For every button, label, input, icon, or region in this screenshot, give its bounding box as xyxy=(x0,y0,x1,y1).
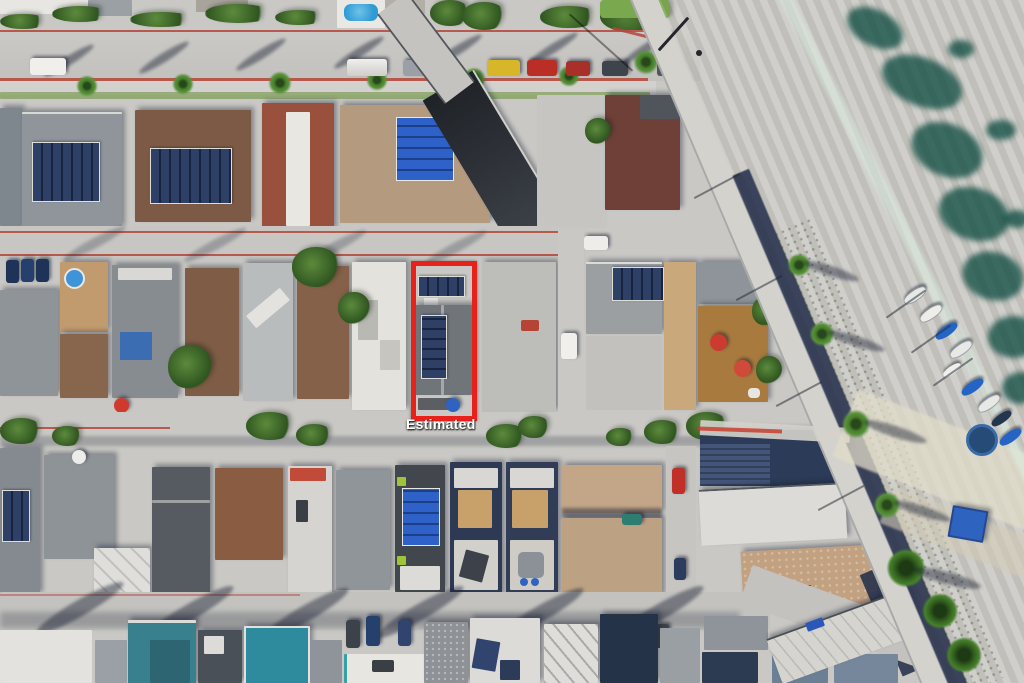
aerial-photo: Estimated xyxy=(0,0,1024,683)
building-roof xyxy=(702,652,758,683)
parked-car xyxy=(346,620,360,648)
turf-patch xyxy=(397,477,406,486)
red-patio-umbrella xyxy=(114,398,129,413)
street-lamp xyxy=(696,50,702,56)
parked-car xyxy=(527,60,557,76)
hedge xyxy=(205,4,271,23)
estimated-label: Estimated xyxy=(406,416,476,432)
turf-patch xyxy=(397,556,406,565)
palm-tree xyxy=(171,72,195,96)
parked-car xyxy=(347,59,387,76)
courtyard xyxy=(458,490,492,528)
parked-car xyxy=(366,616,380,646)
seaweed-patch xyxy=(948,40,974,58)
tree xyxy=(338,292,370,324)
hedge xyxy=(540,6,598,28)
parked-car xyxy=(674,558,686,580)
parked-car xyxy=(36,259,49,282)
tile-roof-section xyxy=(700,444,770,486)
rooftop-furniture xyxy=(521,320,539,331)
driveway xyxy=(537,95,607,228)
roof-section xyxy=(400,566,440,590)
building-roof xyxy=(544,624,598,683)
hedge xyxy=(130,12,192,27)
parked-car xyxy=(487,60,520,76)
roof-solar-array xyxy=(402,488,440,546)
white-patio-umbrella xyxy=(72,450,86,464)
building-roof xyxy=(44,455,114,559)
red-curb-line xyxy=(0,231,580,233)
building-roof xyxy=(336,470,390,590)
seaweed-patch xyxy=(1004,210,1024,228)
red-curb-line xyxy=(0,594,300,596)
hot-tub xyxy=(748,388,760,398)
building-roof xyxy=(0,108,22,226)
parked-car xyxy=(566,61,590,76)
roof-ridge-line xyxy=(152,500,210,503)
building-roof xyxy=(60,334,108,398)
roof-section xyxy=(500,660,520,680)
building-roof xyxy=(215,468,283,560)
building-roof xyxy=(0,630,92,683)
palm-tree xyxy=(944,636,984,674)
hedge xyxy=(52,6,108,22)
parked-car xyxy=(561,333,577,359)
building-roof xyxy=(95,640,127,683)
hedge xyxy=(275,10,323,25)
trampoline xyxy=(966,424,998,456)
parked-car xyxy=(584,236,608,250)
wood-deck xyxy=(664,262,696,410)
blue-tarp xyxy=(120,332,152,360)
tree xyxy=(168,345,212,389)
spa-pool xyxy=(64,268,85,289)
building-roof xyxy=(562,465,662,513)
roof-solar-array xyxy=(612,267,664,301)
roof-equipment xyxy=(372,660,394,672)
roof-solar-array xyxy=(2,490,30,542)
roof-solar-array xyxy=(150,148,232,204)
courtyard xyxy=(512,490,548,528)
palm-tree xyxy=(267,70,293,96)
parked-car xyxy=(30,58,66,75)
building-roof xyxy=(586,336,662,410)
red-patio-umbrella xyxy=(734,360,751,377)
roof-deck xyxy=(454,468,498,488)
parked-car xyxy=(398,620,411,646)
street-tree xyxy=(246,412,294,440)
shade-canopy xyxy=(518,552,544,578)
roof-section xyxy=(296,500,308,522)
palm-tree xyxy=(920,592,960,630)
spa-pool xyxy=(531,578,539,586)
parked-car xyxy=(21,259,34,282)
roof-deck xyxy=(118,268,172,280)
building-roof xyxy=(244,626,310,683)
roof-section xyxy=(150,640,190,683)
building-roof xyxy=(562,518,662,597)
building-roof xyxy=(704,616,768,650)
building-roof xyxy=(152,467,210,597)
roof-section xyxy=(380,340,400,370)
street-tree xyxy=(296,424,332,446)
building-roof xyxy=(310,640,342,683)
roof-deck xyxy=(510,468,554,488)
tree xyxy=(292,247,340,287)
street-tree xyxy=(52,426,82,446)
tree xyxy=(756,356,782,384)
street-tree xyxy=(518,416,550,438)
spa-pool xyxy=(520,578,528,586)
tree xyxy=(462,2,506,30)
parked-car xyxy=(672,468,685,494)
roof-deck xyxy=(204,636,224,654)
red-roof-section xyxy=(290,468,326,481)
building-roof xyxy=(699,482,848,546)
roof-deck xyxy=(286,112,310,226)
building-roof xyxy=(243,263,293,401)
palm-tree xyxy=(75,74,99,98)
red-curb-line xyxy=(0,254,560,256)
red-curb-line xyxy=(0,30,664,32)
building-roof xyxy=(0,290,58,396)
building-roof xyxy=(424,622,468,683)
alley xyxy=(558,228,584,422)
building-roof xyxy=(288,466,332,595)
parked-car xyxy=(622,514,642,525)
property-boundary-outline xyxy=(411,261,477,421)
building-roof xyxy=(482,262,556,412)
roof-solar-array xyxy=(32,142,100,202)
swimming-pool xyxy=(344,4,378,21)
shadow-streak xyxy=(562,508,662,518)
hedge xyxy=(0,14,46,29)
roof-section xyxy=(472,638,501,672)
building-roof xyxy=(660,628,700,683)
street-tree xyxy=(0,418,42,444)
street-tree xyxy=(606,428,634,446)
red-patio-umbrella xyxy=(710,334,727,351)
street-tree xyxy=(644,420,680,444)
seaweed-patch xyxy=(986,120,1016,140)
tree xyxy=(585,118,611,144)
beach-tent xyxy=(947,505,988,543)
building-roof xyxy=(600,614,658,683)
parked-car xyxy=(6,260,19,283)
